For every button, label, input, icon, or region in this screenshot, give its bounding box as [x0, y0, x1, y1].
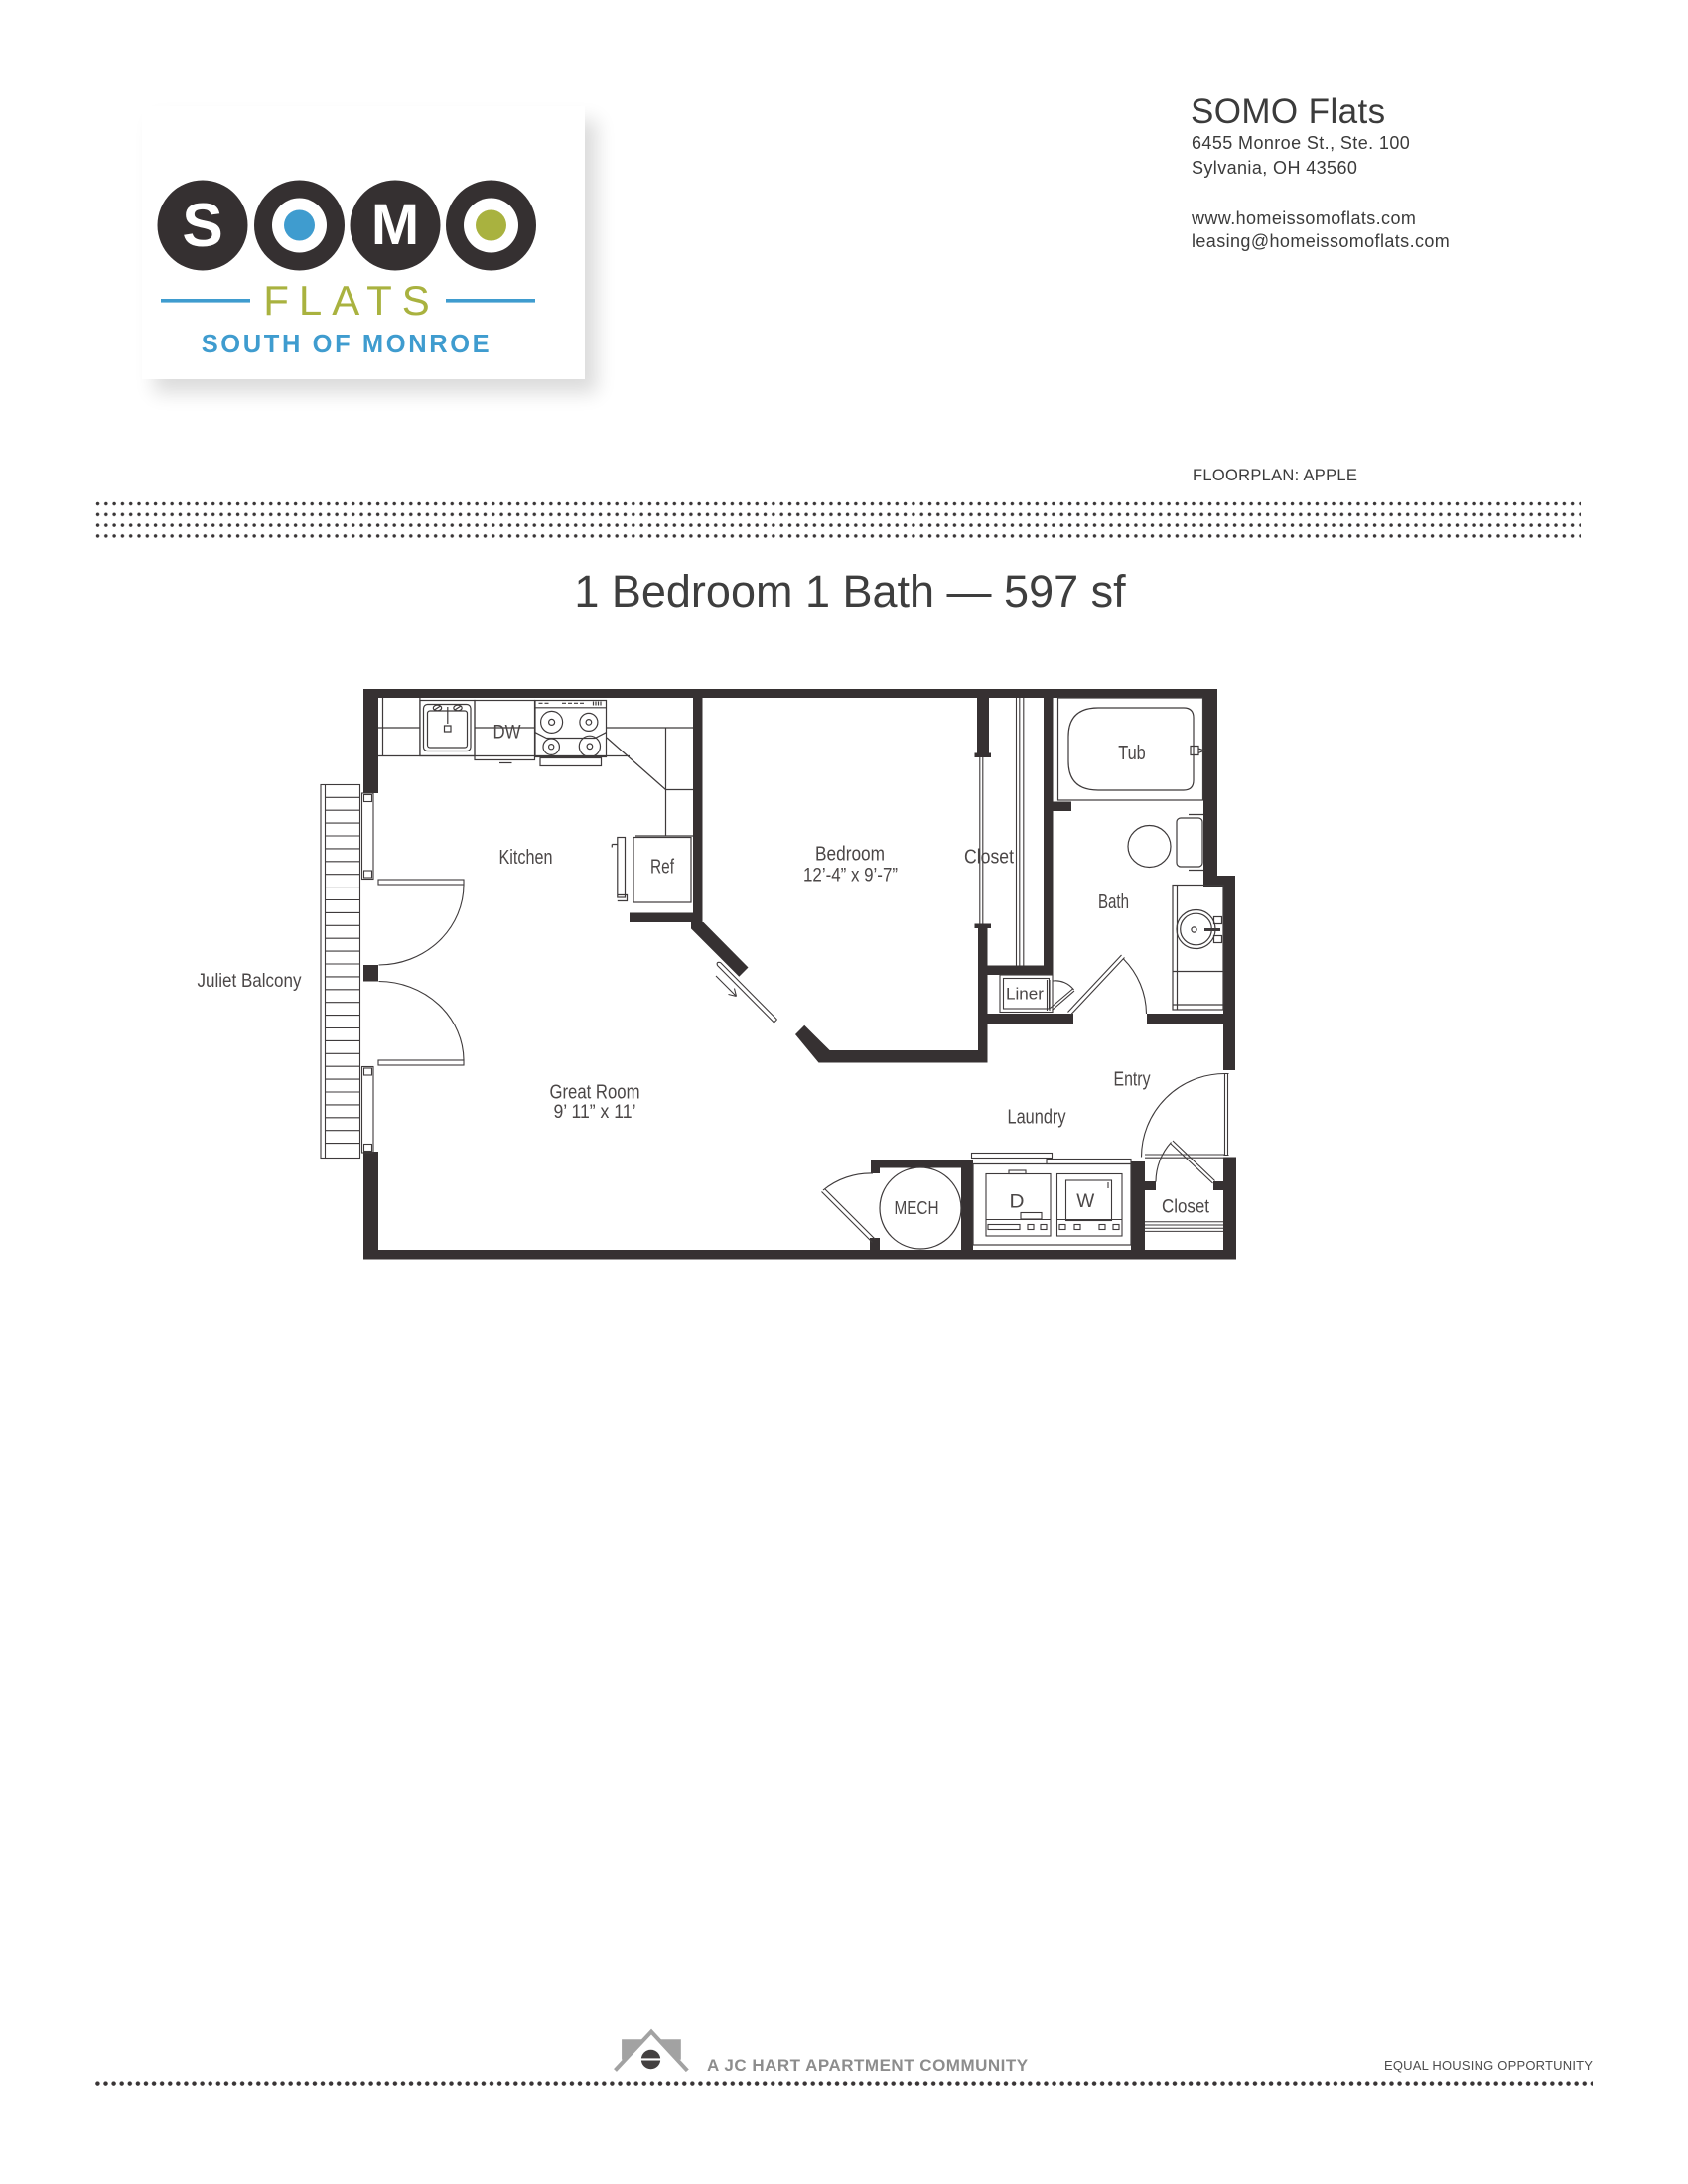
- svg-text:Closet: Closet: [964, 847, 1014, 869]
- svg-text:Bath: Bath: [1098, 891, 1129, 913]
- svg-text:Laundry: Laundry: [1008, 1107, 1066, 1129]
- svg-text:MECH: MECH: [895, 1198, 939, 1218]
- svg-text:W: W: [1076, 1191, 1094, 1212]
- svg-text:Bedroom: Bedroom: [815, 844, 885, 866]
- svg-text:Tub: Tub: [1118, 743, 1146, 764]
- svg-text:Closet: Closet: [1162, 1196, 1209, 1218]
- svg-text:S: S: [182, 192, 222, 260]
- svg-text:Liner: Liner: [1006, 986, 1045, 1004]
- svg-text:12’-4” x 9’-7”: 12’-4” x 9’-7”: [803, 866, 898, 887]
- svg-text:D: D: [1010, 1192, 1025, 1213]
- svg-text:FLATS: FLATS: [263, 277, 440, 324]
- svg-text:SOUTH OF MONROE: SOUTH OF MONROE: [202, 331, 492, 358]
- svg-text:9’ 11” x 11’: 9’ 11” x 11’: [554, 1102, 636, 1123]
- svg-text:Entry: Entry: [1114, 1069, 1151, 1091]
- svg-text:Kitchen: Kitchen: [499, 847, 553, 869]
- svg-text:DW: DW: [493, 723, 521, 744]
- svg-text:Great Room: Great Room: [550, 1082, 640, 1104]
- svg-text:Ref: Ref: [650, 857, 674, 879]
- svg-text:Juliet Balcony: Juliet Balcony: [198, 970, 302, 992]
- svg-text:M: M: [371, 193, 419, 257]
